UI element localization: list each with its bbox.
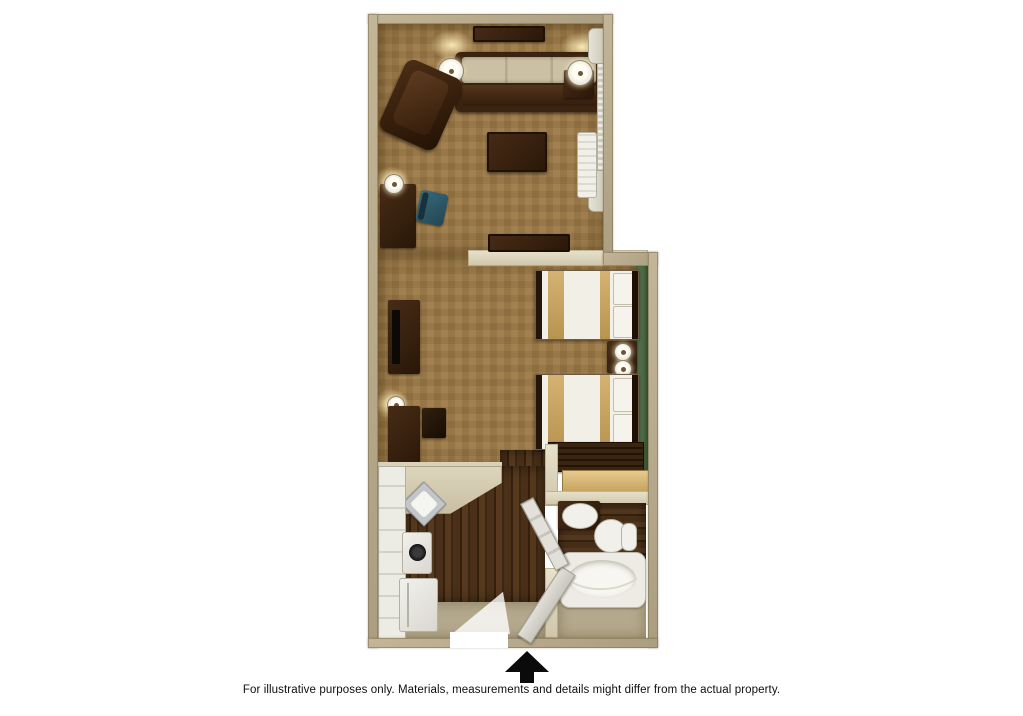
bed-pillow [613, 273, 634, 305]
desk-chair-back [417, 192, 429, 221]
wall-lamp-icon [384, 174, 404, 194]
tv-screen [392, 310, 400, 364]
wall-top [368, 14, 613, 24]
page-background: { "page": { "background": "#ffffff", "di… [0, 0, 1023, 716]
coffee-table [487, 132, 547, 172]
up-arrow-stem [520, 671, 534, 683]
bed [535, 270, 639, 340]
entry-doorway-gap [450, 632, 508, 648]
bed-runner [548, 375, 564, 449]
bed-pillow [613, 306, 634, 338]
media-credenza [488, 234, 570, 252]
bed [535, 374, 639, 450]
bed-footboard [536, 375, 542, 449]
sink-basin [410, 490, 438, 518]
bed-headboard [632, 271, 638, 339]
floor-plan [368, 14, 658, 648]
bed-blanket-fold [600, 375, 610, 449]
vanity-sink [562, 503, 598, 529]
wall-left [368, 14, 378, 648]
disclaimer-text: For illustrative purposes only. Material… [0, 684, 1023, 696]
wall-right-lower [648, 252, 658, 648]
bed-pillow [613, 378, 634, 412]
desk [380, 184, 416, 248]
recliner-cushion [391, 68, 451, 137]
stove-burner [409, 544, 426, 561]
tv-console [388, 300, 420, 374]
bed-blanket-fold [600, 271, 610, 339]
ac-unit [577, 132, 597, 198]
bed-footboard [536, 271, 542, 339]
up-arrow-icon [505, 651, 549, 672]
refrigerator-handle [407, 583, 409, 627]
bed-headboard [632, 375, 638, 449]
stove [402, 532, 432, 574]
dresser [548, 442, 644, 472]
bedside-lamp-icon [614, 343, 632, 361]
table-lamp-icon [567, 60, 593, 86]
wall-shelf [473, 26, 545, 42]
wall-bottom [368, 638, 658, 648]
stool [422, 408, 446, 438]
bed-runner [548, 271, 564, 339]
bedroom-side-table [388, 406, 420, 468]
wall-right-upper [603, 14, 613, 262]
refrigerator [399, 578, 438, 632]
